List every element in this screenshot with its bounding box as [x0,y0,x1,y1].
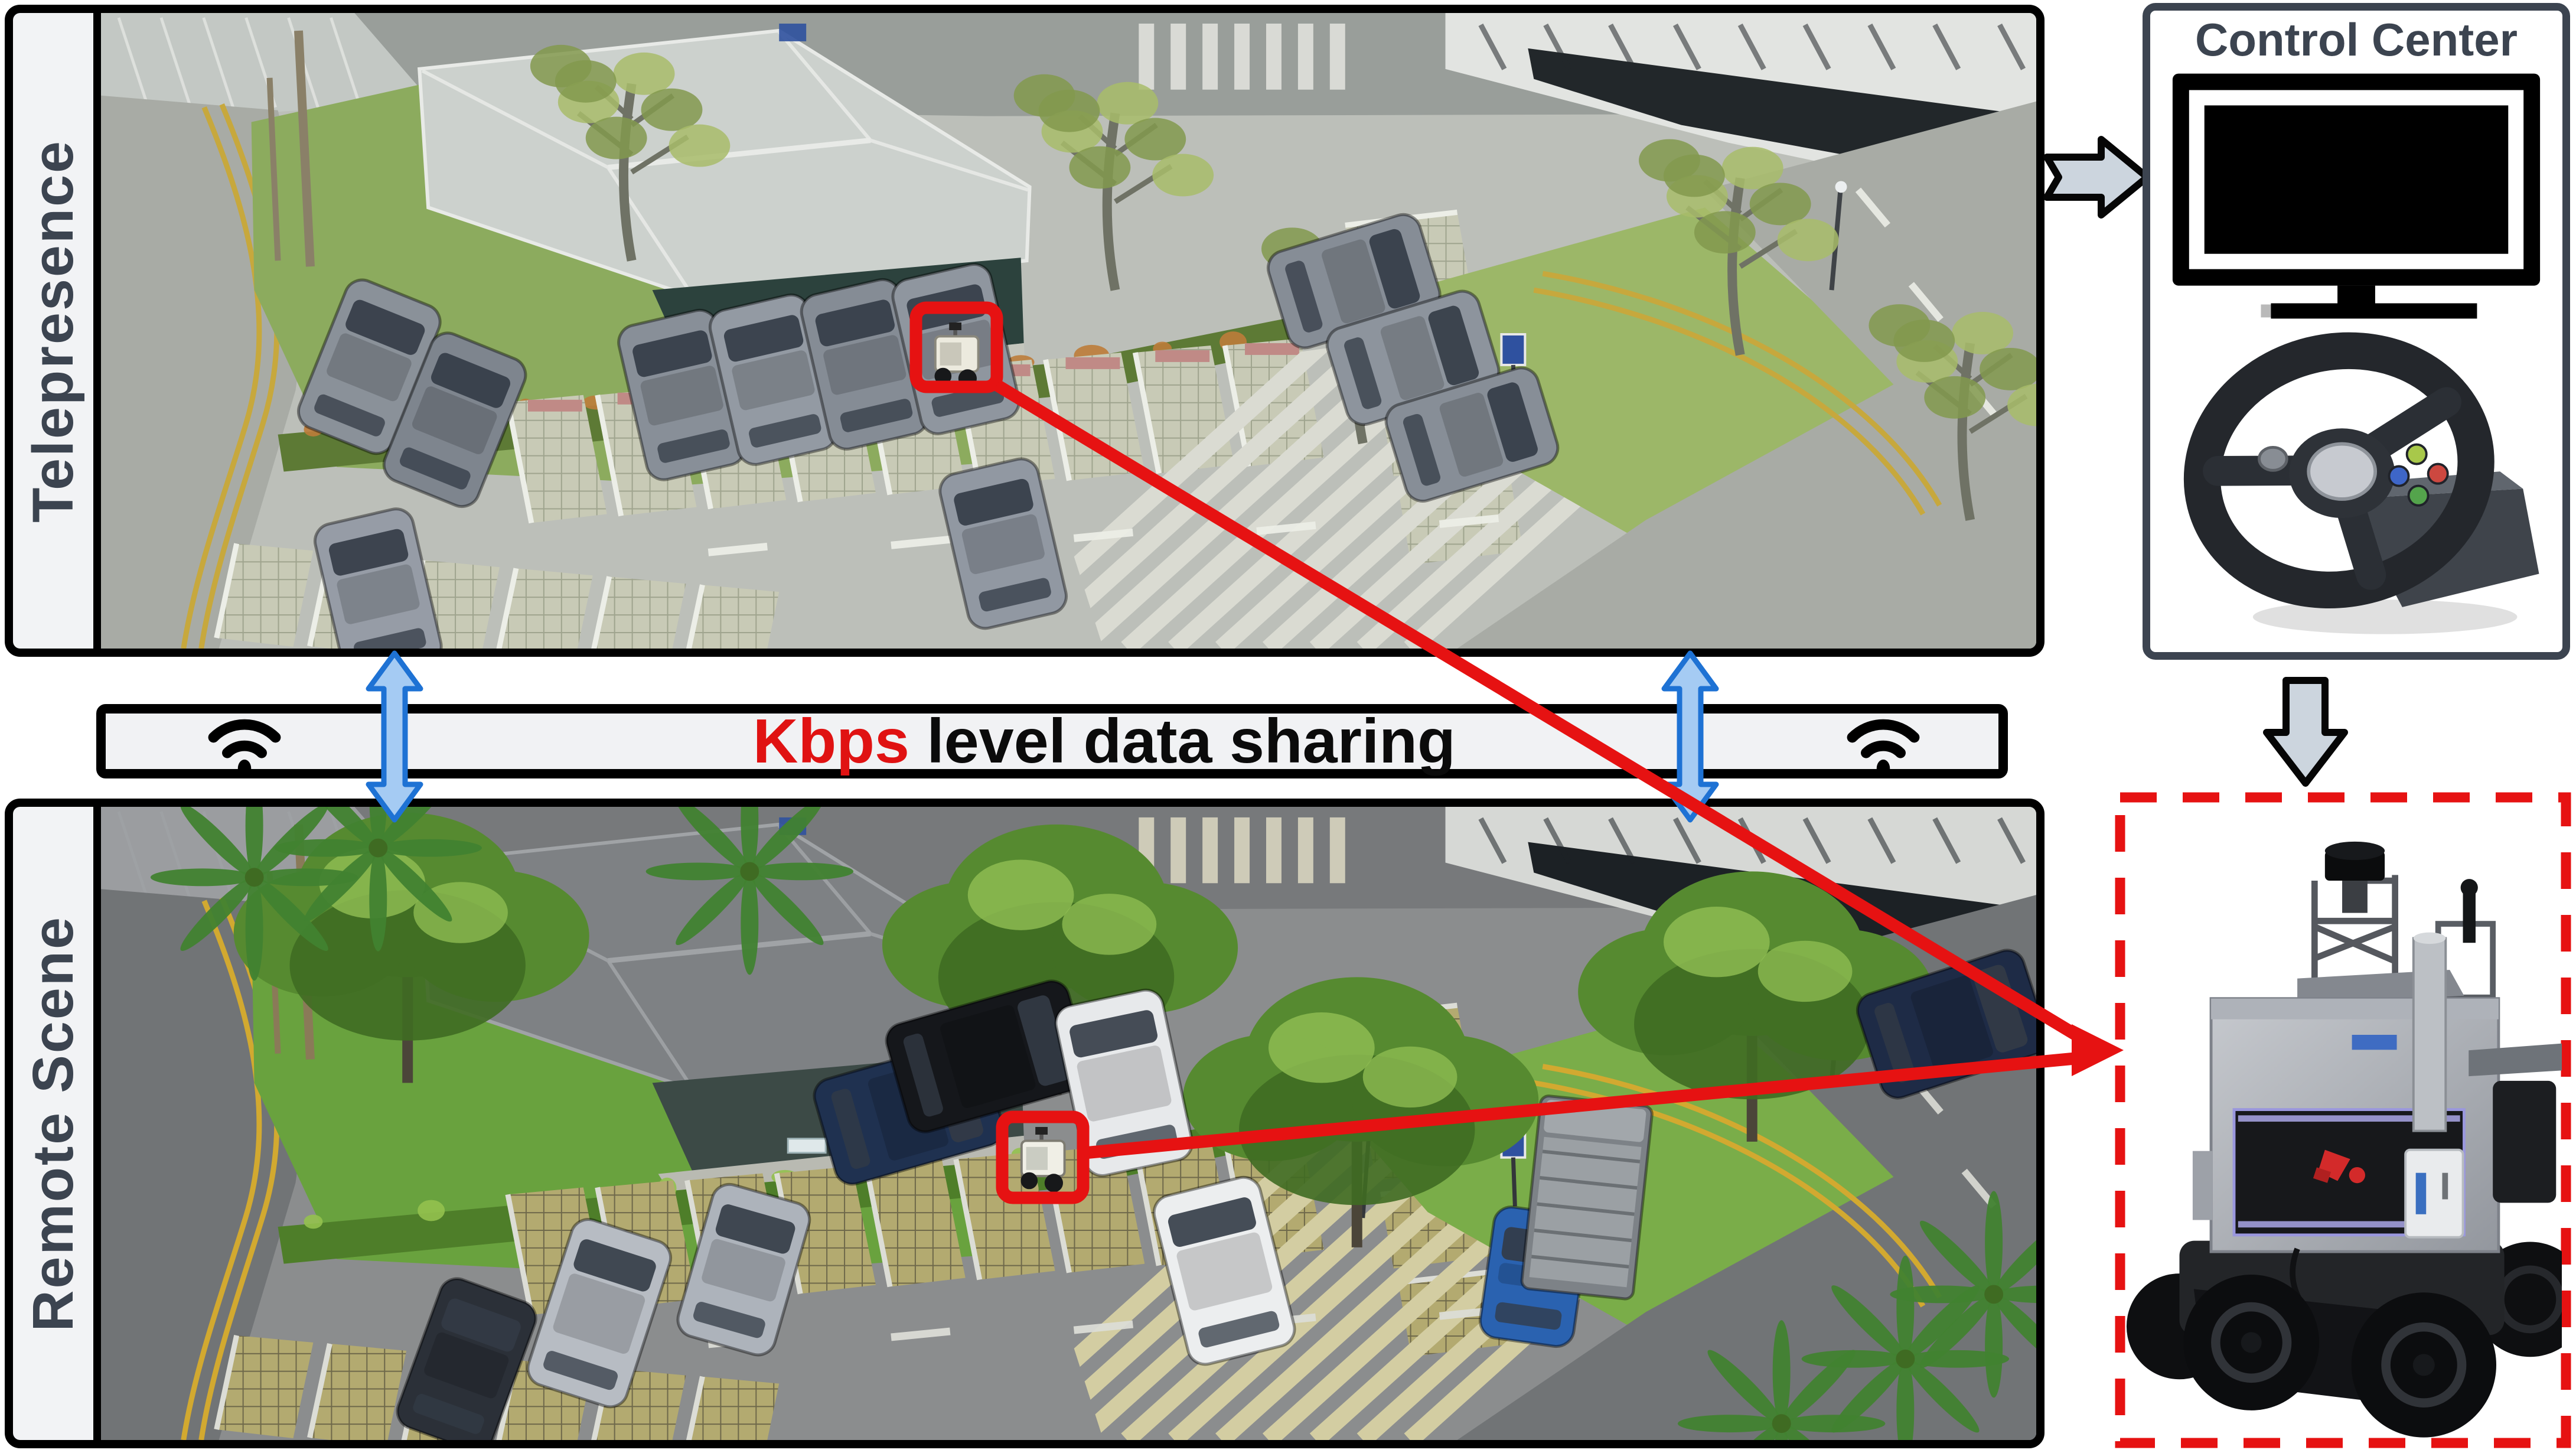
remote-scene-label-strip: Remote Scene [13,807,101,1440]
remote-scene-panel: Remote Scene [5,799,2045,1448]
steering-wheel-icon [2150,327,2562,649]
wifi-icon-left [200,705,289,777]
sync-arrow-left-icon [359,649,430,825]
control-center-box: Control Center [2143,3,2570,660]
robot-dashed-box [2114,791,2572,1449]
figure-canvas: Telepresence Kbps level data sharing [0,0,2576,1453]
sync-arrow-right-icon [1655,649,1726,825]
remote-scene-image [101,807,2036,1440]
robot-photo [2125,803,2562,1441]
command-arrow-icon [2255,675,2356,790]
link-bar-rest: level data sharing [909,706,1456,776]
telepresence-panel: Telepresence [5,5,2045,657]
wifi-icon-right [1839,705,1928,777]
feed-arrow-icon [2039,131,2154,226]
link-bar-text: Kbps level data sharing [648,647,1456,835]
kbps-highlight: Kbps [753,706,909,776]
telepresence-scene [101,13,2036,649]
control-center-title: Control Center [2150,13,2562,67]
telepresence-scene-image [101,13,2036,649]
remote-scene-label: Remote Scene [20,916,86,1332]
telepresence-label: Telepresence [20,139,86,523]
telepresence-label-strip: Telepresence [13,13,101,649]
remote-scene [101,807,2036,1440]
monitor-icon [2150,70,2562,324]
